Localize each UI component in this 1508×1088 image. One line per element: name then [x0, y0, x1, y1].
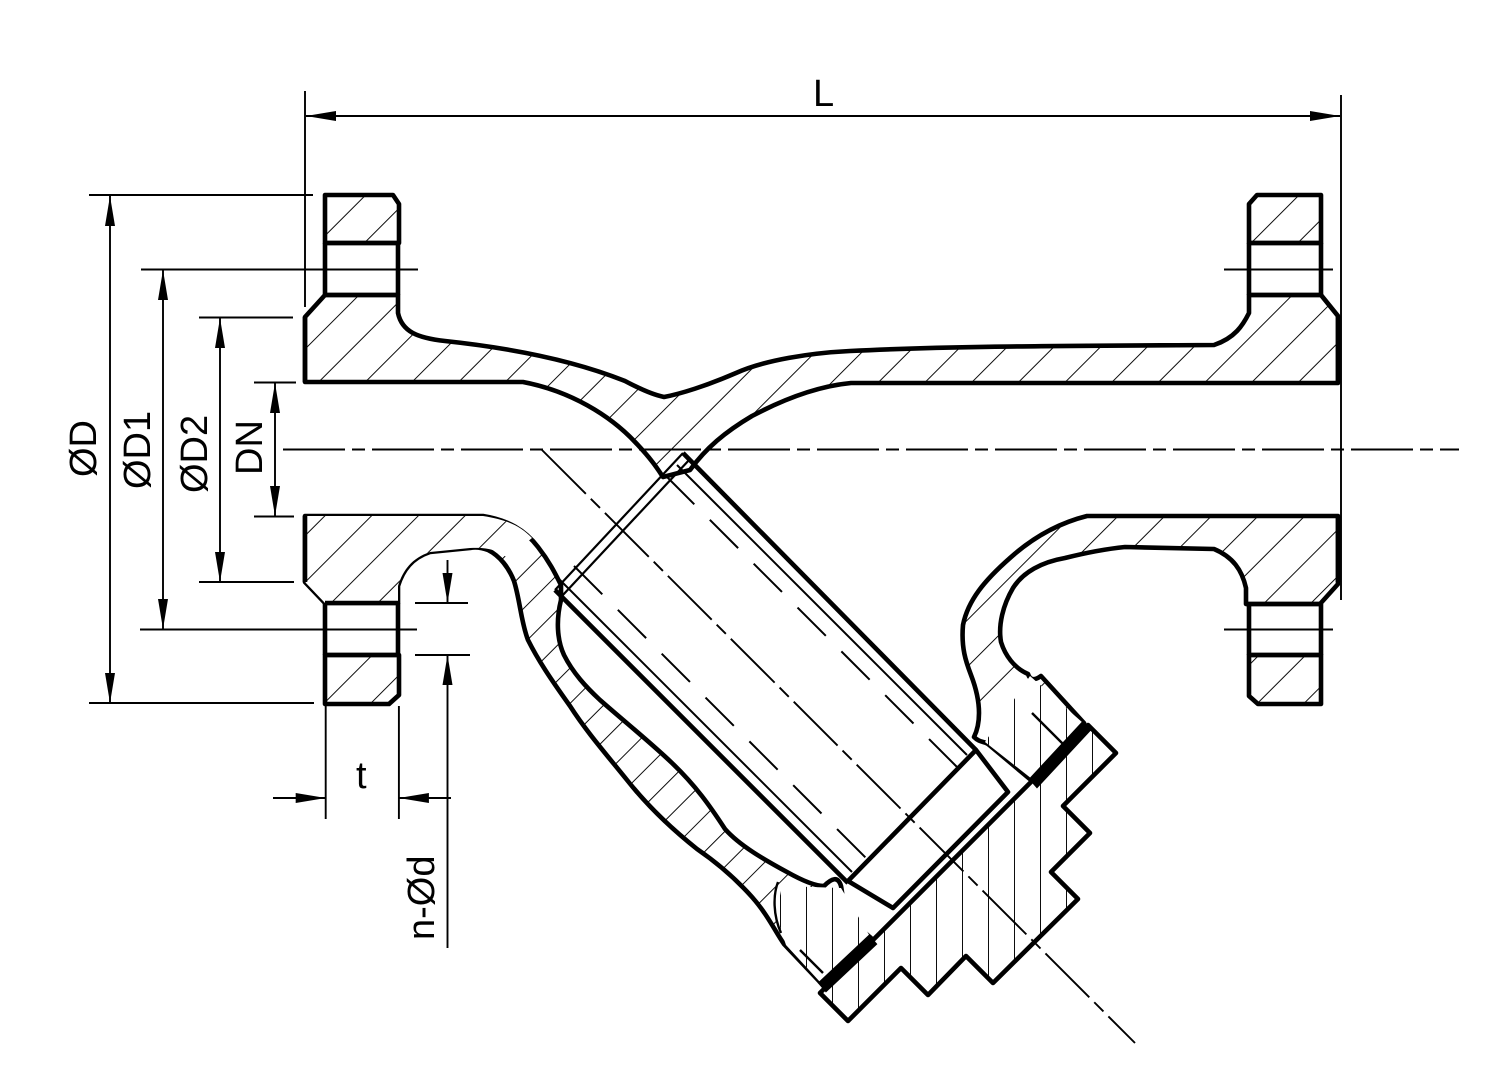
svg-text:ØD: ØD	[63, 420, 105, 477]
svg-text:n-Ød: n-Ød	[401, 856, 443, 940]
svg-text:ØD2: ØD2	[174, 415, 216, 493]
svg-text:ØD1: ØD1	[117, 411, 159, 489]
svg-text:L: L	[813, 73, 834, 115]
svg-text:t: t	[356, 755, 367, 797]
svg-text:DN: DN	[229, 420, 271, 475]
